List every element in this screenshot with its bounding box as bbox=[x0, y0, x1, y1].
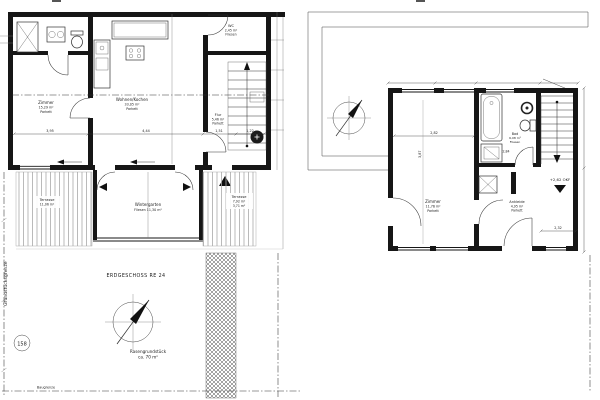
room-label: Terrasse bbox=[231, 195, 248, 199]
stair-up-arrow-icon bbox=[244, 62, 250, 70]
wc-tank-icon bbox=[71, 31, 83, 35]
room-area: 11,06 m² bbox=[40, 203, 55, 207]
room-label: Zimmer bbox=[425, 199, 441, 204]
room-floor: Fliesen bbox=[510, 140, 521, 144]
dimension-label: 2,82 bbox=[430, 131, 438, 135]
garden-path bbox=[206, 253, 236, 398]
dimension-label: 3,87 bbox=[418, 150, 422, 158]
hall-door-arc bbox=[206, 132, 226, 152]
dimension-chain: 3,95 4,44 1,51 1,22 bbox=[13, 129, 266, 136]
room-detail: Fliesen 11,30 m² bbox=[134, 208, 162, 212]
level-marker: +2,62 OKF bbox=[550, 177, 571, 193]
boundary-label: Baugrenze bbox=[37, 386, 55, 390]
compass-icon bbox=[327, 96, 371, 140]
room-floor: Parkett bbox=[212, 122, 224, 126]
room-door-arc bbox=[479, 200, 503, 224]
stove-icon bbox=[126, 46, 144, 60]
compass-icon bbox=[105, 294, 161, 350]
door-swing-arrow-icon bbox=[183, 183, 191, 191]
floor-plan-sheet: 3,95 4,44 1,51 1,22 bbox=[0, 0, 600, 400]
boundary-label: Grundstücksgrenze bbox=[3, 261, 9, 306]
room-door-arc bbox=[70, 98, 90, 118]
upper-floor-plan: +2,62 OKF 2,82 3,87 2,84 2,32 Zimmer 11,… bbox=[308, 12, 590, 392]
dimension-label: 2,32 bbox=[554, 226, 562, 230]
level-marker-label: +2,62 OKF bbox=[550, 177, 571, 182]
staircase bbox=[541, 96, 573, 164]
room-label: Flur bbox=[215, 113, 222, 117]
cropped-text-fragment bbox=[52, 0, 61, 2]
dimension-label: 4,44 bbox=[142, 129, 150, 133]
room-label: Wohnen/Kochen bbox=[116, 97, 149, 102]
parcel-number: 158 bbox=[17, 342, 27, 348]
kitchen-island-icon bbox=[112, 21, 168, 39]
kitchen-counter-icon bbox=[94, 40, 110, 88]
lawn-label: Rasengrundstück bbox=[130, 349, 167, 354]
cropped-text-fragment bbox=[416, 0, 425, 2]
bathtub-icon bbox=[481, 94, 502, 141]
dimension-label: 2,84 bbox=[502, 150, 509, 154]
room-label: Wintergarten bbox=[135, 202, 162, 207]
bath-door-arc bbox=[515, 147, 533, 165]
wc-tank-icon bbox=[530, 120, 536, 131]
dimension-label: 1,51 bbox=[215, 129, 223, 133]
bathroom-fixtures bbox=[17, 22, 83, 52]
room-door-arc bbox=[504, 218, 532, 246]
bathroom-fixtures bbox=[479, 94, 536, 193]
room-area: 3,71 m² bbox=[233, 204, 246, 208]
room-floor: Parkett bbox=[40, 110, 52, 114]
washer-icon bbox=[47, 27, 65, 42]
staircase bbox=[228, 62, 266, 150]
room-label: Terrasse bbox=[39, 198, 56, 202]
door-swing-arrow-icon bbox=[99, 183, 107, 191]
wc-icon bbox=[72, 36, 83, 48]
ground-floor-plan: 3,95 4,44 1,51 1,22 bbox=[0, 12, 300, 398]
dimension-label: 1,22 bbox=[246, 129, 254, 133]
exit-arrow-icon bbox=[57, 160, 64, 165]
doors bbox=[393, 147, 533, 246]
exit-arrow-icon bbox=[130, 160, 137, 165]
level-marker-icon bbox=[554, 185, 566, 193]
dimension-label: 3,95 bbox=[46, 129, 54, 133]
room-floor: Fliesen bbox=[225, 33, 236, 37]
french-door-arc bbox=[393, 198, 421, 226]
wc-icon bbox=[520, 120, 530, 131]
room-label: Zimmer bbox=[38, 100, 54, 105]
lawn-area: ca. 70 m² bbox=[138, 354, 158, 359]
floor-plan-drawing: 3,95 4,44 1,51 1,22 bbox=[0, 0, 600, 400]
room-floor: Parkett bbox=[511, 209, 523, 213]
room-floor: Parkett bbox=[427, 209, 439, 213]
bath-door-arc bbox=[48, 55, 68, 75]
terrace-deck-left bbox=[16, 172, 92, 246]
room-label: Ankleide bbox=[509, 200, 525, 204]
kitchen-fixtures bbox=[94, 21, 168, 88]
room-floor: Parkett bbox=[126, 107, 138, 111]
room-label: WC bbox=[228, 24, 235, 28]
plan-title: ERDGESCHOSS RE 24 bbox=[107, 273, 166, 279]
